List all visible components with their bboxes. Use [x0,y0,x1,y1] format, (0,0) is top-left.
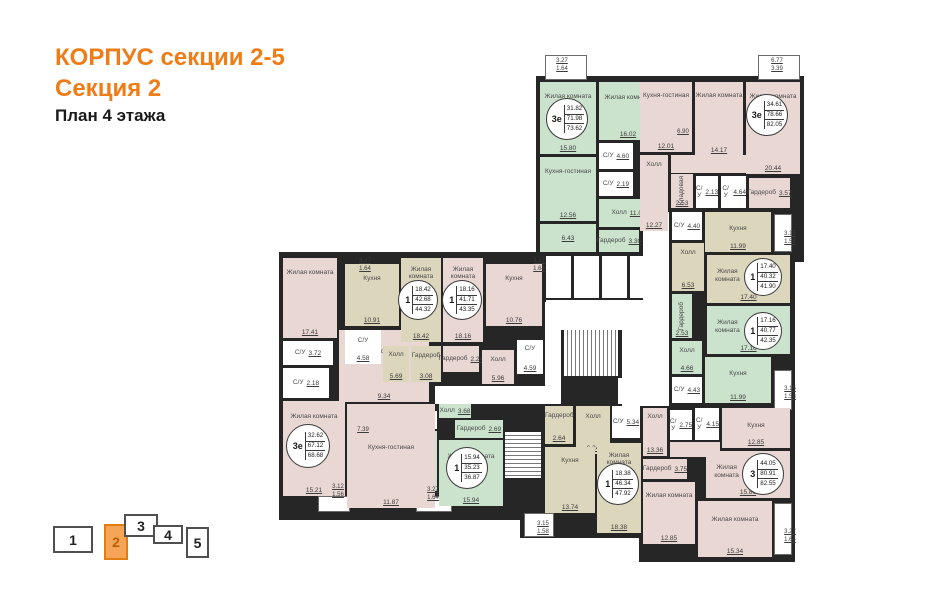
room: С/У4.58 [345,330,381,364]
room-area: 3.57 [779,190,792,197]
room: Жилая комната14.17 [695,82,743,156]
apartment-stat-circle: 118.1641.7143.35 [442,280,482,320]
room-name: Кухня [705,357,771,378]
room: Гардероб2.64 [545,406,573,444]
apartment-area-value: 31.82 [565,105,584,114]
room-area: 12.56 [540,212,596,219]
floor-title: План 4 этажа [55,106,285,126]
apartment-area-value: 40.32 [758,272,777,282]
room: С/У5.34 [612,406,640,438]
dimension-value: 3.27 [549,57,575,65]
room-area: 9.34 [339,393,429,400]
elevator-shaft [574,256,599,298]
room-area: 2.75 [679,422,692,429]
room: Кухня11.99 [705,212,771,252]
room-name: Гардероб [747,189,776,196]
room-area: 3.72 [308,350,321,357]
room: Кладовая2.53 [671,174,693,208]
apartment-area-value: 18.42 [413,286,432,295]
room-area: 11.99 [705,394,771,401]
corridor [643,212,669,406]
apartment-area-value: 34.61 [765,101,784,110]
apartment-area-value: 73.62 [565,123,584,133]
apartment-areas: 32.6267.1268.68 [305,432,325,460]
room-area: 4.58 [345,355,381,362]
room-name: Холл [576,406,610,420]
apartment-areas: 31.8271.9873.62 [564,105,584,133]
dimension-value: 3.15 [777,385,803,393]
room-area: 3.08 [411,373,441,380]
dimension-value: 7.39 [350,426,376,434]
apartment-stat-circle: 118.4242.6844.32 [398,280,438,320]
room-name: Жилая комната [710,268,745,283]
room: Кухня-гостиная12.56 [540,157,596,221]
apartment-area-value: 15.94 [462,454,481,463]
room-area: 20.44 [746,165,800,172]
room-area: 15.86 [706,489,790,496]
room-name: Холл [672,341,702,354]
room-name: Холл [643,408,667,420]
dimension-label: 3.271.64 [549,57,575,73]
apartment-areas: 44.0580.9182.55 [757,460,777,488]
apartment-area-value: 18.38 [613,470,632,479]
dimension-value: 3.39 [764,65,790,73]
dimension-label: 3.271.64 [777,528,803,544]
room-area: 6.43 [562,235,575,242]
apartment-area-value: 32.62 [306,432,325,441]
dimension-value: 1.64 [352,265,378,273]
dimension-value: 1.58 [777,393,803,401]
apartment-area-value: 78.66 [765,110,784,120]
room-area: 5.34 [626,419,639,426]
room: Кухня12.85 [722,408,790,448]
room-name: Кухня [705,212,771,233]
room-area: 17.41 [283,329,337,336]
apartment-type: 1 [603,479,612,489]
dimension-value: 3.12 [325,483,351,491]
room: Гардероб3.57 [749,178,790,208]
room-name: Жилая комната [443,258,483,281]
room-name: Кухня-гостиная [640,82,692,100]
apartment-areas: 18.3846.3447.92 [612,470,632,498]
room-name: С/У [695,417,703,432]
room-area: 4.60 [616,153,629,160]
apartment-area-value: 68.68 [306,450,325,460]
apartment-stat-circle: 3е31.8271.9873.62 [546,98,588,140]
room: Кухня13.74 [545,447,595,513]
dimension-value: 6.77 [764,57,790,65]
room: С/У2.19 [599,172,633,196]
apartment-areas: 15.9435.2336.87 [461,454,481,482]
room-name: Жилая комната [401,258,441,281]
apartment-area-value: 67.12 [306,441,325,451]
room-area: 4.59 [517,365,543,372]
dimension-value: 3.15 [530,520,556,528]
apartment-area-value: 46.34 [613,479,632,489]
room-name: Жилая комната [710,319,745,334]
building-title: КОРПУС секции 2-5 [55,42,285,73]
dimension-value: 3.27 [352,257,378,265]
apartment-stat-circle: 117.4040.3241.90 [744,258,782,296]
room: Холл3.68 [439,404,471,418]
room-area: 14.17 [695,147,743,154]
dimension-value: 1.64 [549,65,575,73]
elevator-shaft [602,256,627,298]
dimension-label: 3.151.58 [777,385,803,401]
apartment-stat-circle: 3е34.6178.6682.05 [746,94,788,136]
apartment-area-value: 80.91 [758,469,777,479]
dimension-label: 6.90 [670,128,696,144]
apartment-area-value: 82.05 [765,119,784,129]
room-area: 12.85 [643,535,695,542]
room-name: Жилая комната [283,401,345,421]
apartment-type: 1 [403,295,412,305]
room: Гардероб3.08 [411,346,441,382]
title-block: КОРПУС секции 2-5 Секция 2 План 4 этажа [55,42,285,126]
apartment-areas: 17.4040.3241.90 [757,263,777,291]
apartment-type: 1 [748,326,757,336]
room: С/У2.18 [283,368,329,398]
room-name: С/У [674,386,685,393]
apartment-type: 1 [748,272,757,282]
room: Кухня10.91 [345,264,399,326]
room: С/У4.40 [672,212,702,240]
room-name: С/У [295,349,306,356]
apartment-type: 3 [748,469,757,479]
room-area: 10.76 [486,317,542,324]
room-name: С/У [674,222,685,229]
dimension-label: 7.39 [350,426,376,442]
room-name: Гардероб [545,406,573,419]
room: Гардероб2.53 [672,294,692,338]
section-nav-item-5[interactable]: 5 [186,527,209,558]
room-name: С/У [603,152,614,159]
apartment-area-value: 71.98 [565,114,584,124]
apartment-areas: 17.1640.7742.35 [757,317,777,345]
room-area: 12.85 [722,439,790,446]
room-area: 2.69 [488,426,501,433]
dimension-label: 3.151.58 [530,520,556,536]
dimension-label: 3.271.64 [352,257,378,273]
room-area: 15.34 [698,548,772,555]
room-area: 2.64 [545,435,573,442]
room-area: 17.16 [707,345,790,352]
apartment-area-value: 41.90 [758,281,777,291]
apartment-type: 3е [550,114,564,124]
apartment-area-value: 17.40 [758,263,777,272]
room-area: 2.53 [672,330,692,337]
room-area: 4.40 [687,223,700,230]
room: Жилая комната12.85 [643,482,695,544]
room-area: 18.38 [597,524,641,531]
dimension-label: 3.151.58 [777,230,803,246]
room: Холл6.53 [672,243,704,291]
dimension-value: 3.27 [420,486,446,494]
room: Холл12.27 [640,155,668,231]
apartment-area-value: 36.87 [462,472,481,482]
room-name: Холл [383,346,409,359]
room-name: Кухня-гостиная [540,157,596,176]
apartment-type: 3е [291,441,305,451]
apartment-areas: 34.6178.6682.05 [764,101,784,129]
room-name: Холл [640,155,668,168]
dimension-value: 1.64 [777,536,803,544]
dimension-label: 3.121.56 [325,483,351,499]
room-name: Холл [611,209,626,216]
room-name: Кухня [722,408,790,429]
room: 6.43 [540,224,596,252]
dimension-label: 3.271.64 [420,486,446,502]
staircase [564,330,618,376]
room-name: Жилая комната [695,82,743,99]
room-name: Кухня [545,447,595,464]
apartment-area-value: 82.55 [758,478,777,488]
room-area: 11.99 [705,243,771,250]
room-name: С/У [517,340,543,353]
room-name: С/У [293,379,304,386]
room: Кухня11.99 [705,357,771,403]
room-area: 15.80 [540,145,596,152]
room: Гардероб2.24 [443,346,479,372]
room: С/У3.72 [283,341,333,365]
apartment-type: 1 [452,463,461,473]
section-nav-item-4[interactable]: 4 [153,525,183,544]
room-name: С/У [721,185,730,200]
room: С/У4.64 [721,176,746,208]
room-area: 10.91 [345,317,399,324]
room: Холл5.69 [383,346,409,382]
room-name: Жилая комната [698,501,772,523]
dimension-label: 6.773.39 [764,57,790,73]
elevator-shaft [630,256,658,298]
room-name: С/У [670,418,677,433]
room-area: 3.75 [674,466,687,473]
apartment-stat-circle: 3е32.6267.1268.68 [286,424,330,468]
room: С/У2.75 [670,410,692,440]
apartment-stat-circle: 115.9435.2336.87 [446,447,488,489]
room-name: Холл [440,407,455,414]
room: Гардероб2.69 [455,420,503,438]
dimension-value: 1.64 [420,494,446,502]
room: С/У4.59 [517,340,543,374]
room: Жилая комната17.41 [283,258,337,338]
room-area: 18.16 [443,333,483,340]
room-name: С/У [613,418,624,425]
room [671,155,746,173]
room-area: 5.69 [383,373,409,380]
apartment-area-value: 18.16 [457,286,476,295]
room: Холл5.96 [482,350,514,384]
room: С/У4.15 [695,408,719,440]
room: Жилая комната15.34 [698,501,772,557]
room-name: Гардероб [457,425,486,432]
room-area: 17.40 [707,294,790,301]
room-area: 6.53 [672,282,704,289]
apartment-area-value: 44.05 [758,460,777,469]
room-name: Гардероб [411,346,441,359]
room-area: 12.01 [640,143,692,150]
dimension-value: 1.56 [325,491,351,499]
apartment-area-value: 40.77 [758,326,777,336]
apartment-areas: 18.4242.6844.32 [412,286,432,314]
apartment-stat-circle: 118.3846.3447.92 [597,463,639,505]
room-area: 3.68 [458,408,471,415]
dimension-value: 3.15 [777,230,803,238]
dimension-value: 3.27 [526,257,552,265]
room-name: Гардероб [643,465,672,472]
room-name: С/У [696,185,703,200]
room-area: 18.42 [401,333,441,340]
apartment-area-value: 47.92 [613,488,632,498]
room: Холл4.66 [672,341,702,374]
apartment-area-value: 41.71 [457,295,476,305]
room-name: Жилая комната [709,464,744,479]
room: Гардероб3.75 [643,459,687,479]
room: С/У4.43 [672,377,702,403]
apartment-areas: 18.1641.7143.35 [456,286,476,314]
dimension-value: 1.64 [526,265,552,273]
floor-plan-page: КОРПУС секции 2-5 Секция 2 План 4 этажа … [0,0,941,600]
room-area: 4.64 [733,189,746,196]
room-area: 2.53 [671,200,693,207]
room-area: 2.18 [306,380,319,387]
room-area: 4.15 [706,421,719,428]
room-name: Жилая комната [643,482,695,500]
dimension-value: 3.27 [777,528,803,536]
dimension-value: 1.58 [530,528,556,536]
room-name: С/У [603,180,614,187]
room-name: Гардероб [678,302,685,331]
apartment-type: 1 [447,295,456,305]
apartment-area-value: 43.35 [457,304,476,314]
corridor [435,386,560,404]
room-area: 2.19 [616,181,629,188]
room-area: 2.13 [705,189,718,196]
room-name: Гардероб [597,237,626,244]
room-area: 3.30 [628,238,641,245]
apartment-type: 3е [750,110,764,120]
apartment-area-value: 42.68 [413,295,432,305]
apartment-area-value: 42.35 [758,335,777,345]
room-area: 15.94 [439,497,503,504]
staircase [505,432,541,478]
dimension-value: 1.58 [777,238,803,246]
room-name: Жилая комната [283,258,337,276]
dimension-value: 6.90 [670,128,696,136]
room-area: 13.74 [545,504,595,511]
room-area: 4.43 [687,387,700,394]
room-name: Холл [672,243,704,257]
room: С/У2.13 [696,176,718,208]
room-name: Гардероб [439,355,468,362]
room: С/У4.60 [599,143,633,169]
room: Кухня10.76 [486,264,542,326]
room-name: Холл [482,350,514,364]
room-area: 5.96 [482,375,514,382]
room-area: 12.27 [640,222,668,229]
room: Гардероб3.30 [599,230,639,252]
room-area: 4.66 [672,365,702,372]
apartment-stat-circle: 344.0580.9182.55 [742,453,784,495]
corridor [618,378,662,404]
apartment-area-value: 17.16 [758,317,777,326]
section-nav-item-1[interactable]: 1 [53,526,93,553]
apartment-area-value: 44.32 [413,304,432,314]
room-name: С/У [345,330,381,345]
apartment-stat-circle: 117.1640.7742.35 [744,312,782,350]
apartment-area-value: 35.23 [462,463,481,473]
section-title: Секция 2 [55,73,285,104]
room-area: 13.36 [643,447,667,454]
room: Холл13.36 [643,408,667,456]
dimension-label: 3.271.64 [526,257,552,273]
